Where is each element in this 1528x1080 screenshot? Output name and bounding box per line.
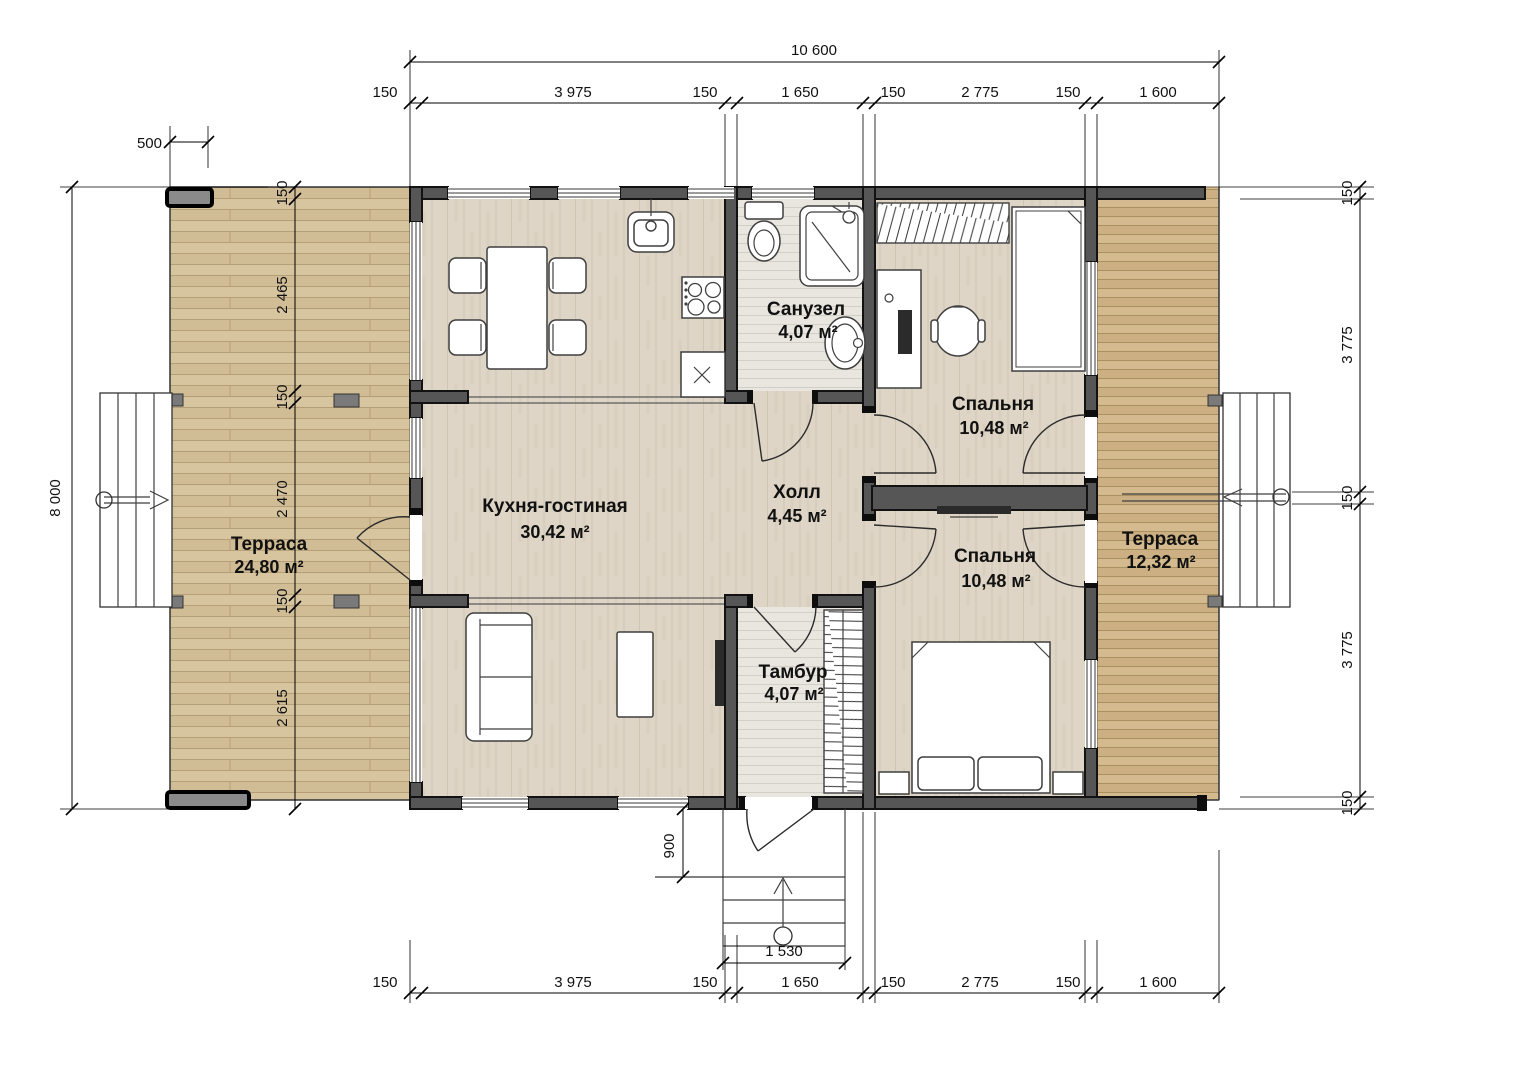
wardrobe-bedroom-top bbox=[877, 203, 1009, 243]
room-label-terrace-left: Терраса bbox=[231, 534, 308, 555]
room-label-bedroom-top: Спальня bbox=[952, 394, 1034, 415]
dim-left-total: 8 000 bbox=[47, 479, 64, 517]
toilet bbox=[745, 202, 783, 261]
svg-text:2 615: 2 615 bbox=[274, 689, 291, 727]
svg-text:150: 150 bbox=[274, 588, 291, 613]
svg-text:150: 150 bbox=[1055, 84, 1080, 101]
room-area-kitchen-living: 30,42 м² bbox=[520, 522, 589, 542]
floor-plan-svg: Терраса 24,80 м² Кухня-гостиная 30,42 м²… bbox=[0, 0, 1528, 1080]
dim-porch-width: 1 530 bbox=[765, 943, 803, 960]
room-area-hall: 4,45 м² bbox=[767, 506, 826, 526]
svg-text:150: 150 bbox=[274, 180, 291, 205]
svg-text:150: 150 bbox=[692, 84, 717, 101]
coffee-table bbox=[617, 632, 653, 717]
shower bbox=[800, 202, 864, 286]
svg-text:3 975: 3 975 bbox=[554, 974, 592, 991]
svg-text:2 775: 2 775 bbox=[961, 84, 999, 101]
room-area-terrace-left: 24,80 м² bbox=[234, 557, 303, 577]
svg-text:1 600: 1 600 bbox=[1139, 974, 1177, 991]
svg-text:150: 150 bbox=[692, 974, 717, 991]
room-label-bathroom: Санузел bbox=[767, 299, 845, 320]
room-label-hall: Холл bbox=[773, 482, 821, 503]
svg-text:150: 150 bbox=[880, 84, 905, 101]
room-label-terrace-right: Терраса bbox=[1122, 529, 1199, 550]
stove bbox=[682, 277, 724, 318]
room-area-terrace-right: 12,32 м² bbox=[1126, 552, 1195, 572]
bed-single bbox=[1012, 207, 1085, 371]
room-area-bathroom: 4,07 м² bbox=[778, 322, 837, 342]
dim-top-total: 10 600 bbox=[791, 42, 837, 59]
svg-text:150: 150 bbox=[1055, 974, 1080, 991]
room-area-bedroom-bottom: 10,48 м² bbox=[961, 571, 1030, 591]
svg-text:150: 150 bbox=[1339, 485, 1356, 510]
svg-text:1 650: 1 650 bbox=[781, 84, 819, 101]
dim-bottom: 150 3 975 150 1 650 150 2 775 150 1 600 … bbox=[372, 803, 1225, 1003]
svg-text:150: 150 bbox=[274, 384, 291, 409]
svg-text:1 650: 1 650 bbox=[781, 974, 819, 991]
door-entrance bbox=[747, 809, 814, 851]
nightstand-left bbox=[879, 772, 909, 794]
svg-text:2 775: 2 775 bbox=[961, 974, 999, 991]
dim-top: 10 600 150 3 975 150 1 650 150 2 775 150… bbox=[372, 42, 1225, 187]
bed-double bbox=[912, 642, 1050, 793]
svg-text:3 975: 3 975 bbox=[554, 84, 592, 101]
svg-text:2 465: 2 465 bbox=[274, 276, 291, 314]
room-label-vestibule: Тамбур bbox=[759, 662, 828, 683]
room-area-bedroom-top: 10,48 м² bbox=[959, 418, 1028, 438]
svg-text:150: 150 bbox=[372, 84, 397, 101]
svg-text:150: 150 bbox=[1339, 790, 1356, 815]
room-label-bedroom-bottom: Спальня bbox=[954, 546, 1036, 567]
svg-text:2 470: 2 470 bbox=[274, 480, 291, 518]
svg-text:150: 150 bbox=[1339, 180, 1356, 205]
stairs-left bbox=[96, 393, 172, 607]
tv-living bbox=[715, 640, 724, 706]
svg-text:150: 150 bbox=[880, 974, 905, 991]
room-label-kitchen-living: Кухня-гостиная bbox=[482, 496, 628, 517]
svg-text:150: 150 bbox=[372, 974, 397, 991]
svg-text:1 600: 1 600 bbox=[1139, 84, 1177, 101]
svg-text:3 775: 3 775 bbox=[1339, 631, 1356, 669]
sofa bbox=[466, 613, 532, 741]
room-area-vestibule: 4,07 м² bbox=[764, 684, 823, 704]
nightstand-right bbox=[1053, 772, 1083, 794]
stairs-entrance bbox=[723, 809, 845, 947]
wardrobe-vestibule bbox=[824, 610, 863, 793]
floor-plan-page: Терраса 24,80 м² Кухня-гостиная 30,42 м²… bbox=[0, 0, 1528, 1080]
dim-left-offset: 500 bbox=[137, 135, 162, 152]
desk bbox=[877, 270, 921, 388]
dim-porch-depth: 900 bbox=[661, 833, 678, 858]
kitchen-appliance bbox=[681, 352, 725, 397]
svg-text:3 775: 3 775 bbox=[1339, 326, 1356, 364]
